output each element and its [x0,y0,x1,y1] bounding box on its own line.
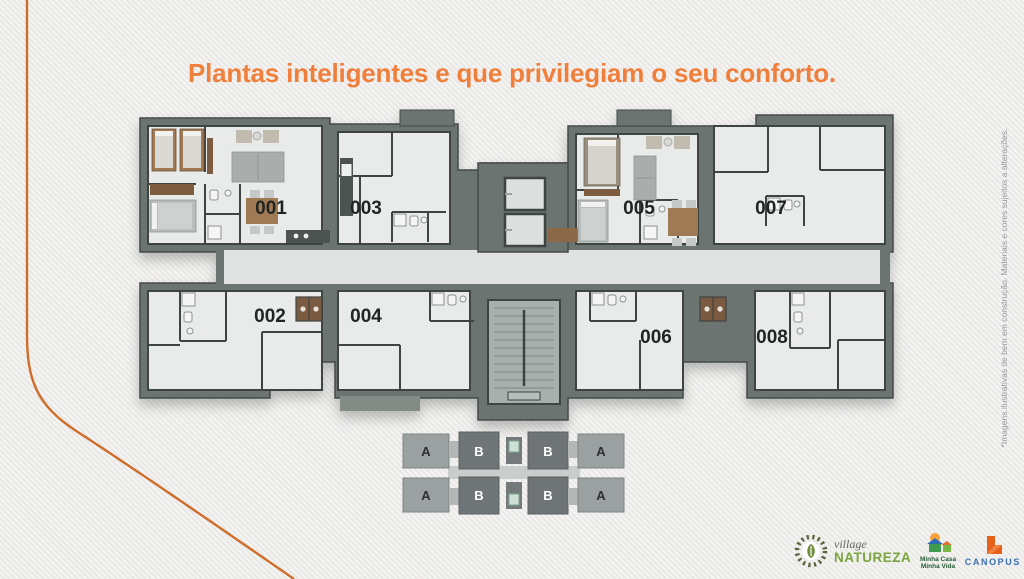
unit-label-002: 002 [254,306,286,327]
page-canvas: Plantas inteligentes e que privilegiam o… [0,0,1024,579]
unit-label-006: 006 [640,327,672,348]
unit-label-004: 004 [350,306,382,327]
keyplan-letter-b2: B [543,444,552,459]
wreath-icon [793,533,829,569]
corridor-floor [222,250,882,284]
roof-tab-left [400,110,454,126]
corridor-cap-right [880,249,890,285]
keyplan-letter-a1: A [421,444,431,459]
mcmv-logo: Minha Casa Minha Vida [920,532,956,571]
unit-003-floor [338,132,450,244]
key-plan: A B B A A B B A [403,432,624,514]
mcmv-house-icon [923,532,953,554]
village-word: village [834,538,911,550]
corridor-cap-left [216,249,224,285]
floor-plan-graphic: 001 003 005 007 002 004 006 008 [0,0,1024,579]
keyplan-letter-a2: A [596,444,606,459]
mcmv-line1: Minha Casa [920,556,956,563]
unit-label-003: 003 [350,198,382,219]
keyplan-letter-b3: B [474,488,483,503]
unit-label-007: 007 [755,198,787,219]
unit-label-008: 008 [756,327,788,348]
village-natureza-logo: village NATUREZA [793,533,911,569]
canopus-logo: CANOPUS [965,535,1021,567]
canopus-word: CANOPUS [965,557,1021,567]
disclaimer-text: *Imagens ilustrativas de bem em construç… [999,98,1009,478]
canopus-icon [983,535,1003,555]
keyplan-letter-b4: B [543,488,552,503]
mcmv-line2: Minha Vida [920,563,956,570]
natureza-word: NATUREZA [834,551,911,565]
unit-007-floor [714,126,885,244]
keyplan-letter-a3: A [421,488,431,503]
building-plan: 001 003 005 007 002 004 006 008 [140,110,893,420]
logo-bar: village NATUREZA Minha Casa Minha Vida [793,527,1021,575]
roof-tab-right [617,110,671,126]
stair-core [488,300,560,404]
balcony-slab [340,396,420,411]
keyplan-letter-b1: B [474,444,483,459]
keyplan-letter-a4: A [596,488,606,503]
unit-label-001: 001 [255,198,287,219]
unit-label-005: 005 [623,198,655,219]
